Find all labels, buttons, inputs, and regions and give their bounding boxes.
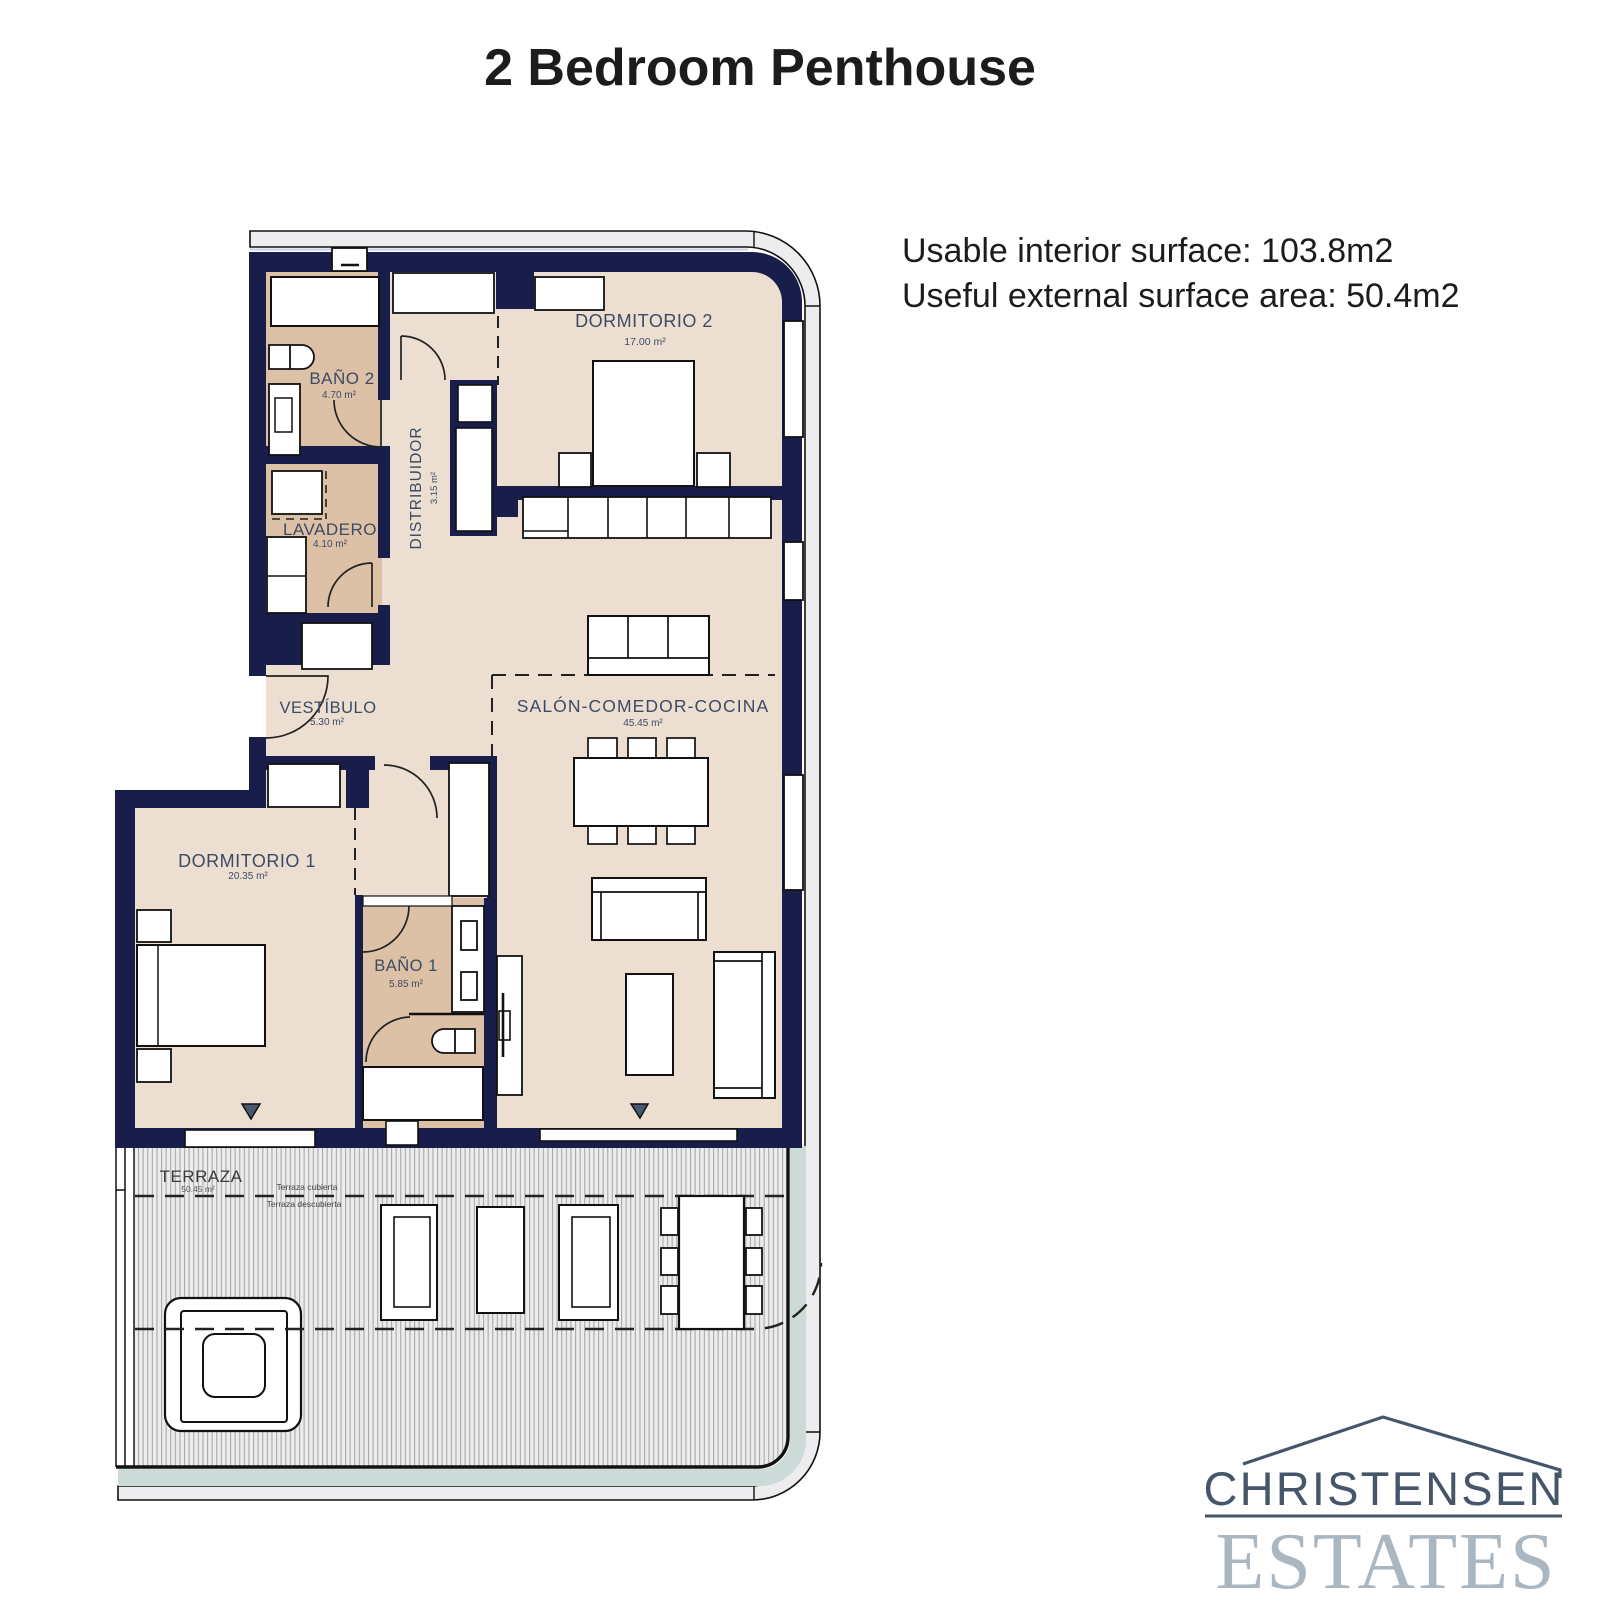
svg-text:4.10 m²: 4.10 m² — [313, 539, 348, 550]
svg-text:17.00 m²: 17.00 m² — [624, 336, 666, 348]
svg-text:DORMITORIO 2: DORMITORIO 2 — [575, 311, 713, 331]
svg-text:45.45 m²: 45.45 m² — [623, 718, 663, 729]
svg-text:Terraza descubierta: Terraza descubierta — [267, 1199, 342, 1209]
svg-text:20.35 m²: 20.35 m² — [228, 871, 268, 882]
svg-text:4.70 m²: 4.70 m² — [322, 390, 357, 401]
svg-text:5.30 m²: 5.30 m² — [310, 717, 345, 728]
svg-text:LAVADERO: LAVADERO — [283, 520, 377, 539]
svg-text:DISTRIBUIDOR: DISTRIBUIDOR — [408, 426, 425, 549]
svg-text:BAÑO 1: BAÑO 1 — [374, 955, 438, 975]
svg-text:Terraza cubierta: Terraza cubierta — [277, 1182, 338, 1192]
svg-text:3.15 m²: 3.15 m² — [429, 472, 440, 504]
svg-text:SALÓN-COMEDOR-COCINA: SALÓN-COMEDOR-COCINA — [517, 695, 769, 716]
svg-text:BAÑO 2: BAÑO 2 — [309, 369, 374, 388]
svg-text:DORMITORIO 1: DORMITORIO 1 — [178, 851, 316, 871]
svg-text:50.45 m²: 50.45 m² — [181, 1184, 215, 1194]
svg-text:CHRISTENSEN: CHRISTENSEN — [1203, 1462, 1564, 1515]
svg-text:VESTÍBULO: VESTÍBULO — [279, 698, 376, 717]
svg-text:ESTATES: ESTATES — [1216, 1518, 1557, 1600]
svg-text:5.85 m²: 5.85 m² — [389, 979, 424, 990]
